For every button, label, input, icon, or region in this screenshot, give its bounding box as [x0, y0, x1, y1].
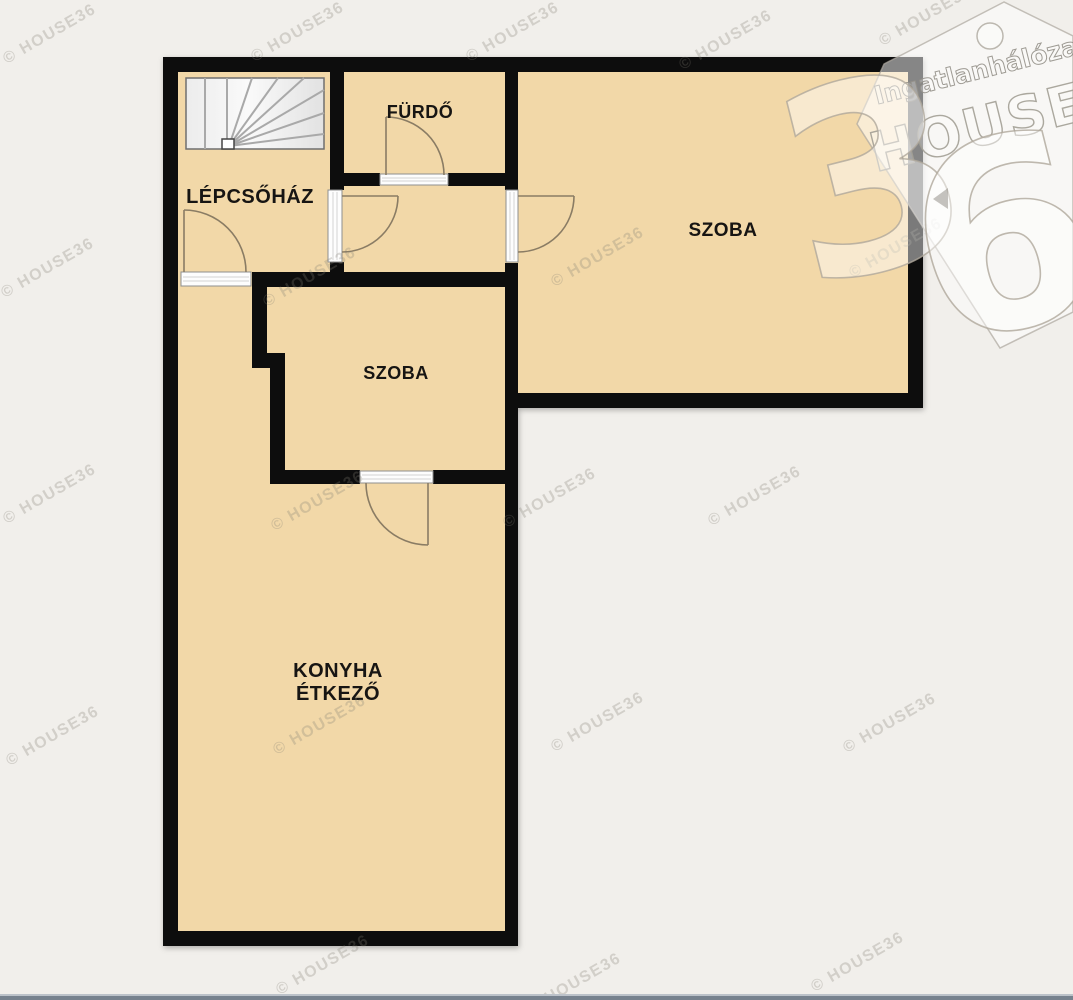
wall-lepcsohaz-right	[330, 57, 344, 190]
label-konyha-line2: ÉTKEZŐ	[296, 682, 380, 705]
house36-watermark: © HOUSE36	[463, 0, 562, 66]
sill-furdo-door	[380, 174, 448, 185]
logo-tag-hole	[977, 23, 1003, 49]
wall-szoba-bottom	[505, 393, 923, 408]
house36-watermark: © HOUSE36	[3, 703, 102, 770]
house36-watermark: © HOUSE36	[0, 1, 99, 68]
label-szoba-large: SZOBA	[689, 220, 758, 241]
house36-watermark: © HOUSE36	[525, 950, 624, 1000]
house36-watermark: © HOUSE36	[248, 0, 347, 66]
house36-watermark: © HOUSE36	[548, 689, 647, 756]
wall-konyha-right	[505, 263, 518, 946]
sill-lepcsohaz-door	[181, 272, 251, 286]
sill-szoba-door	[506, 190, 518, 262]
house36-watermark: © HOUSE36	[0, 461, 99, 528]
label-szoba-small: SZOBA	[363, 363, 429, 383]
bottom-edge-bar	[0, 996, 1073, 1000]
wall-left	[163, 57, 178, 946]
house36-watermark: © HOUSE36	[0, 235, 97, 302]
floorplan-svg: LÉPCSŐHÁZ FÜRDŐ SZOBA SZOBA KONYHA ÉTKEZ…	[0, 0, 1073, 1000]
wall-szoba-small-left-lower	[270, 353, 285, 484]
house36-watermark: © HOUSE36	[808, 929, 907, 996]
wall-szoba-small-bottom-right	[433, 470, 505, 484]
wall-furdo-bottom-right	[448, 173, 505, 186]
bottom-edge-highlight	[0, 994, 1073, 996]
floorplan-page: LÉPCSŐHÁZ FÜRDŐ SZOBA SZOBA KONYHA ÉTKEZ…	[0, 0, 1073, 1000]
sill-konyha-door	[360, 471, 433, 483]
wall-furdo-bottom-left	[344, 173, 380, 186]
stairs-newel-post	[222, 139, 234, 149]
wall-bottom	[163, 931, 518, 946]
label-konyha-line1: KONYHA	[293, 660, 383, 682]
house36-watermark: © HOUSE36	[705, 463, 804, 530]
label-lepcsohaz: LÉPCSŐHÁZ	[186, 185, 314, 208]
stairs-icon	[186, 78, 324, 149]
label-furdo: FÜRDŐ	[387, 101, 454, 122]
house36-watermark: © HOUSE36	[840, 690, 939, 757]
wall-furdo-right	[505, 72, 518, 190]
